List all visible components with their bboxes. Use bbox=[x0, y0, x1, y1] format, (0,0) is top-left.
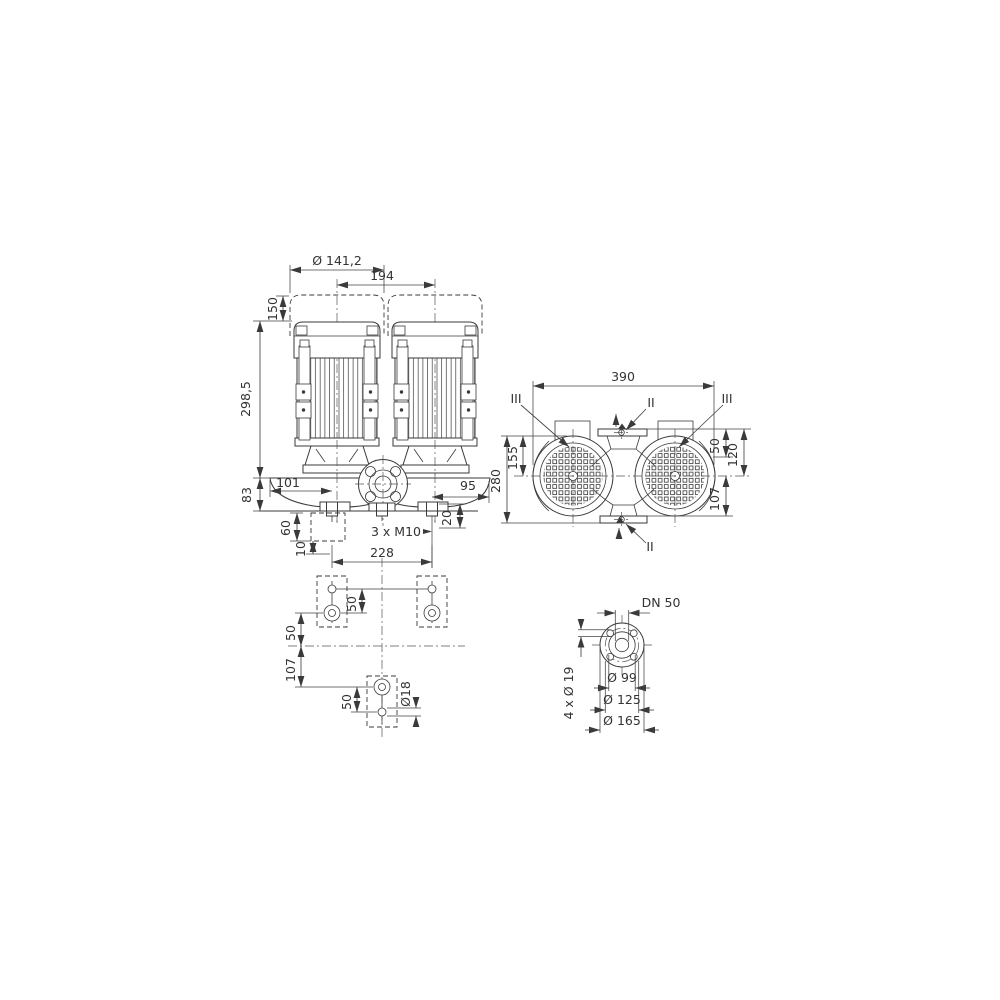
flange-view: DN 50 4 x Ø 19 Ø 99 Ø 125 Ø 165 bbox=[561, 595, 680, 733]
bolt-hole bbox=[607, 630, 614, 637]
dim-pitch-50-bottom: 50 bbox=[339, 694, 354, 710]
section-label-ii-top: II bbox=[647, 395, 654, 410]
foundation-view: 228 50 50 107 50 Ø18 bbox=[283, 545, 465, 737]
dim-pitch-50-top: 50 bbox=[344, 596, 359, 612]
dim-hole-dia: Ø18 bbox=[398, 681, 413, 707]
dim-raised-face: Ø 99 bbox=[607, 670, 637, 685]
bolt-hole bbox=[630, 630, 637, 637]
pump-dimensional-drawing: Ø 141,2 194 150 298,5 83 101 95 20 60 bbox=[0, 0, 1000, 1000]
dim-overall-height: 298,5 bbox=[238, 381, 253, 417]
dim-offset-107: 107 bbox=[283, 658, 298, 682]
dim-grout-depth: 10 bbox=[293, 541, 308, 557]
dim-motor-pitch: 194 bbox=[370, 268, 394, 283]
bolt-cluster-top-right bbox=[417, 576, 447, 627]
foundation-dimensions: 228 50 50 107 50 Ø18 bbox=[283, 545, 432, 725]
anchor-note-arrow bbox=[423, 529, 432, 534]
dim-offset-50: 50 bbox=[283, 625, 298, 641]
anchor-bolt-note: 3 x M10 bbox=[371, 524, 421, 539]
bolt-cluster-bottom bbox=[367, 676, 397, 727]
dim-50: 50 bbox=[707, 438, 722, 454]
bolt-hole bbox=[630, 653, 637, 660]
plan-view: II II III III 390 280 155 50 120 107 bbox=[488, 369, 752, 554]
dim-top-to-center: 155 bbox=[505, 446, 520, 470]
dim-120: 120 bbox=[725, 443, 740, 467]
bolt-hole bbox=[607, 653, 614, 660]
dim-motor-diameter: Ø 141,2 bbox=[312, 253, 362, 268]
dim-outer-dia: Ø 165 bbox=[603, 713, 641, 728]
front-view: Ø 141,2 194 150 298,5 83 101 95 20 60 bbox=[238, 253, 490, 568]
foundation-block-dashed bbox=[311, 513, 345, 541]
dim-base-height: 83 bbox=[239, 487, 254, 503]
foundation-centerlines bbox=[288, 558, 465, 737]
dim-overall-depth: 280 bbox=[488, 469, 503, 493]
dim-bolt-pitch: 228 bbox=[370, 545, 394, 560]
dim-overall-width: 390 bbox=[611, 369, 635, 384]
plan-dimensions: 390 280 155 50 120 107 bbox=[488, 369, 751, 523]
dim-removal-clearance: 150 bbox=[265, 297, 280, 321]
dim-nominal-bore: DN 50 bbox=[642, 595, 681, 610]
dim-foot-height: 20 bbox=[439, 510, 454, 526]
section-label-iii-right: III bbox=[721, 391, 732, 406]
dim-offset-left: 101 bbox=[276, 475, 300, 490]
dim-107: 107 bbox=[707, 487, 722, 511]
dim-bolt-holes: 4 x Ø 19 bbox=[561, 666, 576, 719]
bolt-cluster-top-left bbox=[317, 576, 347, 627]
drawing-canvas: Ø 141,2 194 150 298,5 83 101 95 20 60 bbox=[0, 0, 1000, 1000]
section-label-iii-left: III bbox=[510, 391, 521, 406]
dim-offset-right: 95 bbox=[460, 478, 476, 493]
dim-bolt-circle: Ø 125 bbox=[603, 692, 641, 707]
section-label-ii-bottom: II bbox=[646, 539, 653, 554]
dim-block-depth: 60 bbox=[278, 520, 293, 536]
